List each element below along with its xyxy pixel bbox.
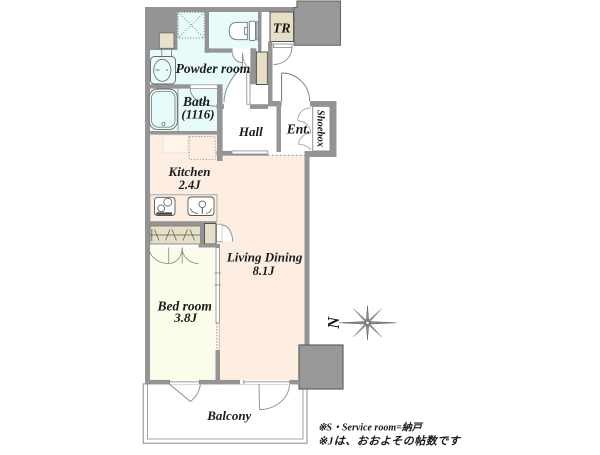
svg-text:Hall: Hall (238, 124, 263, 139)
svg-text:※Jは、おおよその帖数です: ※Jは、おおよその帖数です (318, 435, 462, 448)
svg-text:N: N (324, 316, 343, 330)
svg-text:TR: TR (273, 22, 291, 37)
svg-text:Living Dining: Living Dining (226, 250, 303, 265)
svg-text:Balcony: Balcony (206, 408, 251, 423)
svg-text:8.1J: 8.1J (253, 264, 276, 278)
svg-text:2.4J: 2.4J (178, 178, 202, 192)
svg-text:Kitchen: Kitchen (168, 164, 211, 179)
svg-text:(1116): (1116) (181, 107, 214, 122)
svg-text:※S・Service room=納戸: ※S・Service room=納戸 (318, 422, 424, 434)
svg-text:Shoebox: Shoebox (315, 110, 326, 147)
svg-text:3.8J: 3.8J (173, 310, 197, 325)
svg-text:Powder room: Powder room (176, 61, 251, 76)
svg-text:Ent.: Ent. (286, 122, 311, 137)
